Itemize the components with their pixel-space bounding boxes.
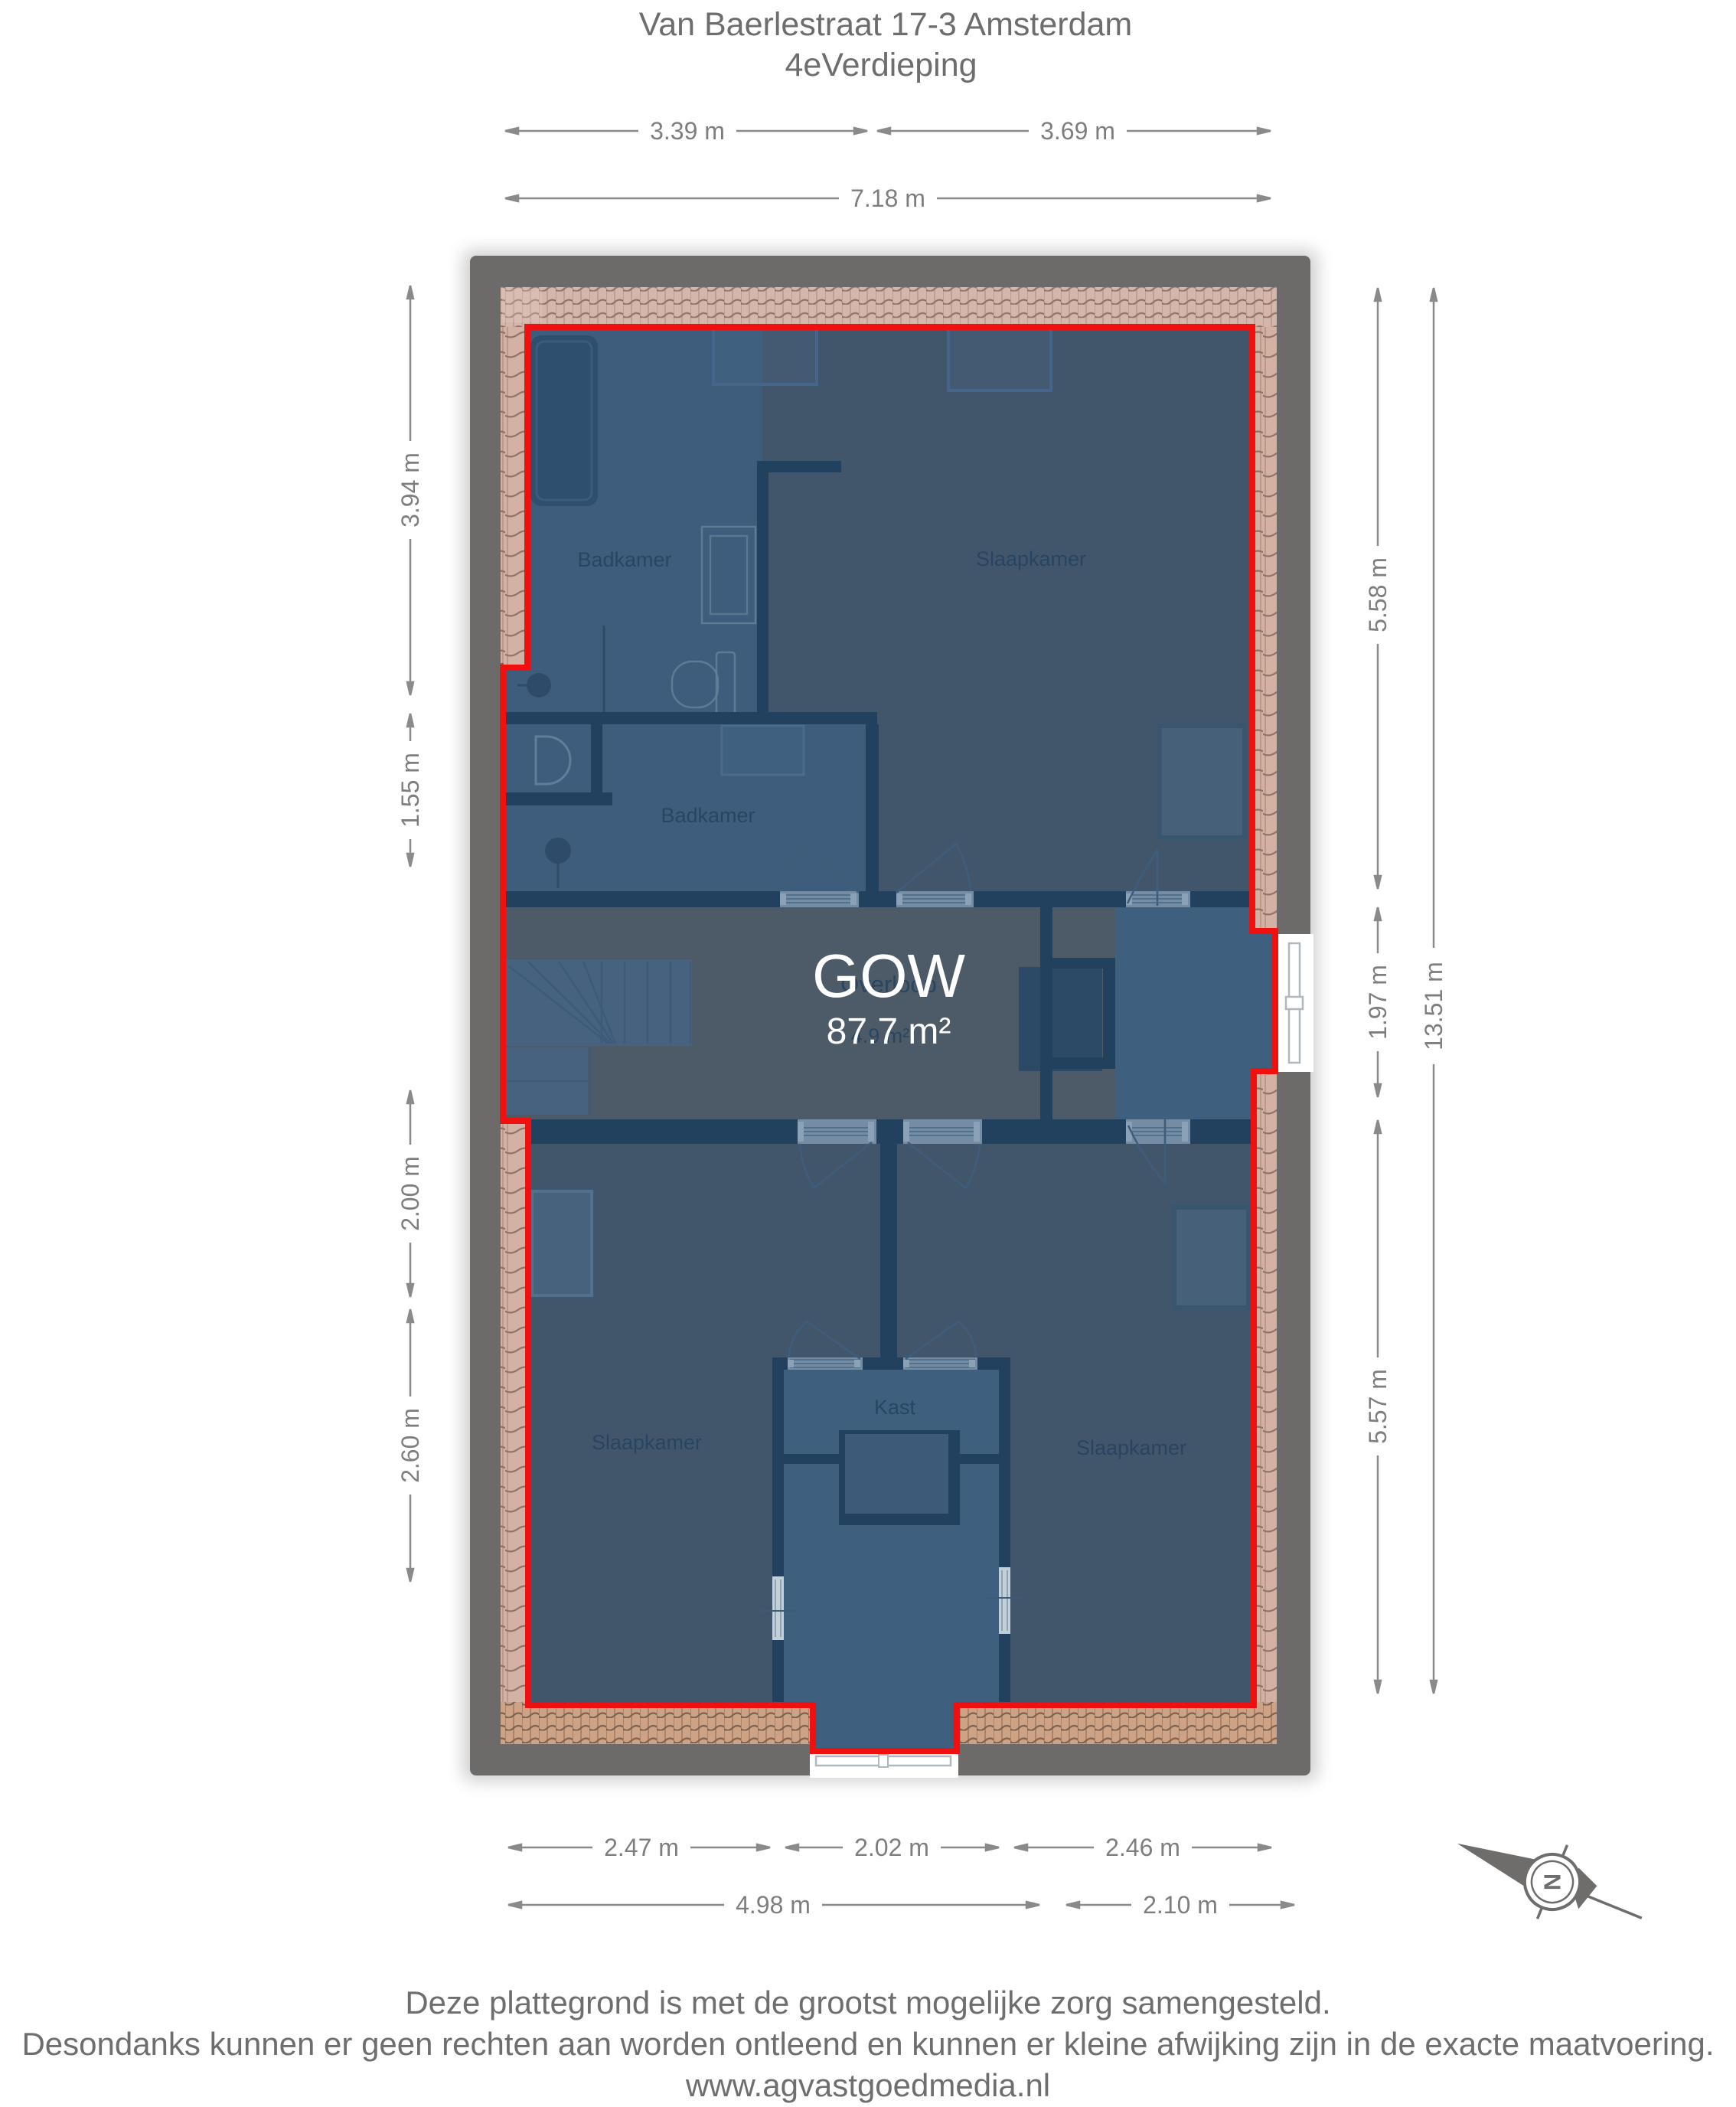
svg-text:2.10 m: 2.10 m xyxy=(1143,1891,1218,1919)
svg-text:GOW: GOW xyxy=(812,942,965,1010)
svg-text:3.69 m: 3.69 m xyxy=(1040,117,1115,145)
svg-text:Slaapkamer: Slaapkamer xyxy=(1076,1436,1186,1459)
svg-text:Desondanks kunnen er geen rech: Desondanks kunnen er geen rechten aan wo… xyxy=(21,2026,1714,2062)
svg-text:Kast: Kast xyxy=(874,1396,916,1419)
svg-text:Badkamer: Badkamer xyxy=(577,548,671,571)
svg-text:2.46 m: 2.46 m xyxy=(1105,1834,1180,1861)
svg-text:5.57 m: 5.57 m xyxy=(1364,1369,1392,1444)
svg-text:4eVerdieping: 4eVerdieping xyxy=(785,47,977,83)
svg-text:Slaapkamer: Slaapkamer xyxy=(976,547,1086,570)
svg-text:5.58 m: 5.58 m xyxy=(1364,557,1392,632)
svg-text:2.47 m: 2.47 m xyxy=(604,1834,679,1861)
svg-text:7.18 m: 7.18 m xyxy=(850,185,925,212)
svg-text:3.94 m: 3.94 m xyxy=(396,452,424,528)
svg-text:4.98 m: 4.98 m xyxy=(736,1891,811,1919)
svg-text:3.39 m: 3.39 m xyxy=(650,117,725,145)
svg-text:2.00 m: 2.00 m xyxy=(396,1156,424,1231)
svg-text:2.60 m: 2.60 m xyxy=(396,1408,424,1483)
svg-text:www.agvastgoedmedia.nl: www.agvastgoedmedia.nl xyxy=(685,2067,1050,2103)
svg-text:Van Baerlestraat 17-3 Amsterda: Van Baerlestraat 17-3 Amsterdam xyxy=(639,6,1133,43)
svg-text:1.55 m: 1.55 m xyxy=(396,753,424,828)
svg-text:2.02 m: 2.02 m xyxy=(854,1834,929,1861)
svg-text:Slaapkamer: Slaapkamer xyxy=(592,1431,702,1454)
svg-text:Badkamer: Badkamer xyxy=(661,804,755,827)
svg-text:Deze plattegrond is met de gro: Deze plattegrond is met de grootst mogel… xyxy=(405,1984,1330,2020)
svg-text:13.51 m: 13.51 m xyxy=(1420,962,1447,1050)
svg-text:87.7 m²: 87.7 m² xyxy=(827,1011,951,1052)
svg-text:N: N xyxy=(1539,1873,1566,1890)
svg-text:1.97 m: 1.97 m xyxy=(1364,965,1392,1040)
